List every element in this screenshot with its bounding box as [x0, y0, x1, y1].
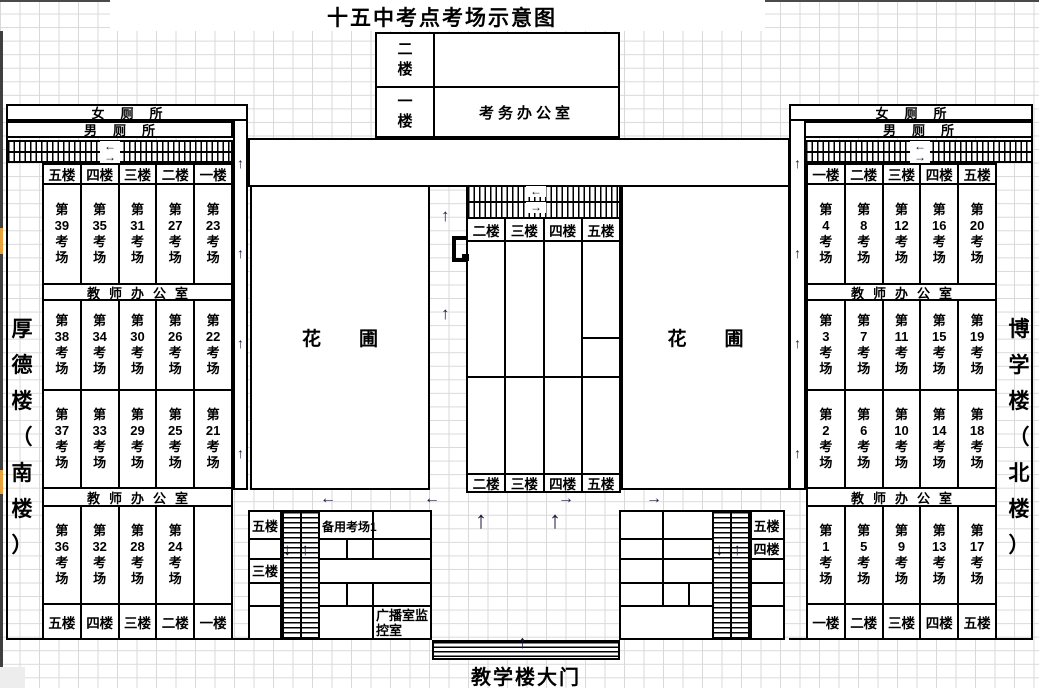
up-arrow-icon: ↑: [441, 207, 450, 224]
center-upper-cells: [468, 242, 619, 378]
exam-office-label: 考务办公室: [435, 88, 618, 136]
exam-room-label: 第 21 考 场: [206, 407, 220, 471]
right-arrow-icon: →: [558, 491, 574, 507]
exam-room-label: 第 23 考 场: [206, 202, 220, 266]
sheet-corner-shading: [0, 667, 25, 688]
empty-room-cell: [195, 507, 231, 603]
floor-label: 三楼: [884, 605, 922, 638]
up-arrow-icon: ↑: [791, 446, 804, 460]
up-arrow-icon: ↑: [301, 541, 310, 558]
wall: [750, 558, 783, 560]
exam-room-cell: 第 3 考 场: [808, 301, 846, 389]
wall: [372, 582, 374, 605]
floor-label: 三楼: [120, 605, 158, 638]
exam-room-cell: 第 27 考 场: [157, 185, 195, 283]
left-arrow-icon: ←: [320, 491, 336, 507]
up-arrow-icon: ↑: [234, 246, 247, 260]
exam-room-cell: 第 11 考 场: [884, 301, 922, 389]
down-arrow-icon: ↓: [715, 541, 724, 558]
wall: [320, 558, 430, 560]
wall: [621, 582, 712, 584]
right-arrow-icon: →: [100, 152, 120, 163]
floor-label: 二楼: [157, 165, 195, 183]
exam-room-label: 第 27 考 场: [168, 202, 182, 266]
bottom-right-stairs: [712, 512, 750, 638]
floor-label: 四楼: [82, 605, 120, 638]
sheet-left-edge: [0, 31, 3, 688]
left-room-row-1: 第 39 考 场第 35 考 场第 31 考 场第 27 考 场第 23 考 场: [44, 185, 231, 285]
center-block-cell-divider: [582, 337, 621, 339]
left-building-corridor: [233, 121, 248, 490]
broadcast-room-label: 广播室监控室: [376, 608, 430, 638]
up-arrow-icon: ↑: [441, 305, 450, 322]
floor-2-label: 二 楼: [377, 34, 435, 86]
exam-room-label: 第 2 考 场: [819, 407, 832, 471]
exam-room-cell: 第 29 考 场: [120, 391, 158, 487]
exam-layout-sheet: 十五中考点考场示意图 二 楼 一 楼 考务办公室 女厕所 男厕所 ← → 五楼四…: [0, 0, 1039, 688]
main-gate-label: 教学楼大门: [426, 661, 626, 688]
exam-room-cell: 第 39 考 场: [44, 185, 82, 283]
floor-label: 一楼: [195, 165, 231, 183]
center-stairs: ← →: [468, 187, 619, 219]
floor-label: 五楼: [959, 605, 995, 638]
up-arrow-icon: ↑: [518, 633, 527, 651]
left-building-room-grid: 五楼四楼三楼二楼一楼 第 39 考 场第 35 考 场第 31 考 场第 27 …: [42, 163, 233, 640]
up-arrow-icon: ↑: [234, 446, 247, 460]
exam-room-cell: 第 9 考 场: [884, 507, 922, 603]
exam-room-cell: 第 32 考 场: [82, 507, 120, 603]
exam-room-cell: 第 20 考 场: [959, 185, 995, 283]
floor-label: 一楼: [808, 605, 846, 638]
teacher-office-label: 教师办公室: [808, 489, 995, 507]
floor-1-label: 一 楼: [377, 88, 435, 136]
stairs-hatch: →: [468, 203, 619, 217]
bottom-right-block: 五楼 四楼 ↓ ↑: [619, 510, 785, 640]
exam-room-label: 第 33 考 场: [92, 407, 106, 471]
wall: [250, 538, 280, 540]
right-arrow-icon: →: [910, 152, 930, 163]
spare-exam-room-label: 备用考场1: [322, 518, 377, 535]
wall: [688, 582, 690, 605]
exam-room-label: 第 3 考 场: [819, 313, 832, 377]
exam-room-cell: 第 25 考 场: [157, 391, 195, 487]
wall: [662, 512, 664, 582]
left-arrow-icon: ←: [526, 186, 546, 197]
floor-label: 二楼: [468, 219, 506, 240]
exam-room-label: 第 12 考 场: [894, 202, 908, 266]
wall: [320, 538, 430, 540]
up-arrow-icon: ↑: [733, 541, 742, 558]
exam-room-label: 第 38 考 场: [55, 313, 69, 377]
exam-room-cell: 第 33 考 场: [82, 391, 120, 487]
left-floor-footer-row: 五楼四楼三楼二楼一楼: [44, 605, 231, 638]
wall: [372, 605, 374, 638]
wall: [621, 538, 712, 540]
exam-room-cell: 第 10 考 场: [884, 391, 922, 487]
stairs-hatch: →: [8, 153, 231, 162]
exam-room-cell: 第 12 考 场: [884, 185, 922, 283]
exam-room-label: 第 14 考 场: [932, 407, 946, 471]
selection-marker: [0, 228, 3, 254]
exam-room-label: 第 32 考 场: [92, 523, 106, 587]
wall: [320, 582, 430, 584]
floor-label: 五楼: [959, 165, 995, 183]
bottom-left-block: 五楼 三楼 备用考场1 广播室监控室 ↓ ↑: [248, 510, 432, 640]
floor-label: 三楼: [250, 558, 280, 582]
right-floor-footer-row: 一楼二楼三楼四楼五楼: [808, 605, 995, 638]
floor-label: 一楼: [195, 605, 231, 638]
exam-room-cell: 第 4 考 场: [808, 185, 846, 283]
center-floor-header-row: 二楼三楼四楼五楼: [468, 219, 619, 242]
up-arrow-icon: ↑: [791, 156, 804, 170]
empty-room-cell: [506, 242, 544, 376]
right-arrow-icon: →: [526, 202, 546, 213]
right-building-name: 博 学 楼 （ 北 楼 ）: [1005, 312, 1033, 564]
floor-label: 二楼: [846, 605, 884, 638]
exam-room-cell: 第 19 考 场: [959, 301, 995, 389]
right-floor-header-row: 一楼二楼三楼四楼五楼: [808, 165, 995, 185]
exam-room-label: 第 13 考 场: [932, 523, 946, 587]
up-arrow-icon: ↑: [791, 246, 804, 260]
exam-room-label: 第 26 考 场: [168, 313, 182, 377]
exam-room-label: 第 29 考 场: [130, 407, 144, 471]
wall: [662, 582, 664, 605]
floor-label: 三楼: [120, 165, 158, 183]
exam-room-cell: 第 1 考 场: [808, 507, 846, 603]
right-room-row-3: 第 2 考 场第 6 考 场第 10 考 场第 14 考 场第 18 考 场: [808, 391, 995, 489]
wall: [621, 558, 712, 560]
exam-room-cell: 第 26 考 场: [157, 301, 195, 389]
exam-room-cell: 第 22 考 场: [195, 301, 231, 389]
wall: [621, 605, 712, 607]
teacher-office-label: 教师办公室: [44, 489, 231, 507]
right-room-row-1: 第 4 考 场第 8 考 场第 12 考 场第 16 考 场第 20 考 场: [808, 185, 995, 285]
floor-label: 四楼: [82, 165, 120, 183]
empty-room-cell: [468, 378, 506, 473]
left-room-row-2: 第 38 考 场第 34 考 场第 30 考 场第 26 考 场第 22 考 场: [44, 301, 231, 391]
stairs-hatch: ←: [468, 187, 619, 203]
center-lower-cells: [468, 378, 619, 475]
exam-room-label: 第 8 考 场: [857, 202, 870, 266]
up-arrow-icon: ↑: [475, 509, 487, 533]
exam-room-label: 第 28 考 场: [130, 523, 144, 587]
stairs-hatch: →: [806, 153, 1031, 162]
floor-label: 五楼: [750, 512, 783, 538]
wall: [372, 538, 374, 558]
exam-room-cell: 第 38 考 场: [44, 301, 82, 389]
empty-room-cell: [468, 242, 506, 376]
exam-room-label: 第 20 考 场: [970, 202, 984, 266]
exam-room-cell: 第 8 考 场: [846, 185, 884, 283]
left-women-toilet: 女厕所: [6, 104, 248, 121]
empty-room-cell: [583, 378, 619, 473]
exam-room-cell: 第 30 考 场: [120, 301, 158, 389]
exam-room-cell: 第 17 考 场: [959, 507, 995, 603]
empty-room-cell: [583, 242, 619, 376]
floor-label: 五楼: [583, 475, 619, 491]
exam-room-label: 第 34 考 场: [92, 313, 106, 377]
left-room-row-3: 第 37 考 场第 33 考 场第 29 考 场第 25 考 场第 21 考 场: [44, 391, 231, 489]
exam-room-label: 第 37 考 场: [55, 407, 69, 471]
left-building-stairs: ← →: [6, 140, 233, 163]
selection-marker: [0, 470, 3, 494]
exam-room-cell: 第 16 考 场: [921, 185, 959, 283]
exam-room-label: 第 11 考 场: [895, 313, 909, 377]
garden-left: 花 圃: [250, 185, 430, 490]
exam-room-cell: 第 37 考 场: [44, 391, 82, 487]
right-room-row-2: 第 3 考 场第 7 考 场第 11 考 场第 15 考 场第 19 考 场: [808, 301, 995, 391]
exam-room-cell: 第 13 考 场: [921, 507, 959, 603]
up-arrow-icon: ↑: [234, 156, 247, 170]
floor-label: 五楼: [44, 605, 82, 638]
right-building-stairs: ← →: [804, 140, 1033, 163]
right-building-corridor: [789, 121, 806, 490]
floor-label: 四楼: [545, 219, 583, 240]
floor-label: 二楼: [468, 475, 506, 491]
left-building-name: 厚 德 楼 （ 南 楼 ）: [8, 312, 36, 564]
up-arrow-icon: ↑: [549, 509, 561, 533]
admin-office-box: 二 楼 一 楼 考务办公室: [375, 32, 620, 138]
exam-room-cell: 第 2 考 场: [808, 391, 846, 487]
exam-room-label: 第 7 考 场: [857, 313, 870, 377]
wall: [320, 605, 430, 607]
up-arrow-icon: ↑: [234, 336, 247, 350]
right-arrow-icon: →: [646, 491, 662, 507]
exam-room-cell: 第 23 考 场: [195, 185, 231, 283]
floor-label: 四楼: [545, 475, 583, 491]
floor-label: 三楼: [506, 475, 544, 491]
exam-room-label: 第 10 考 场: [894, 407, 908, 471]
right-building-room-grid: 一楼二楼三楼四楼五楼 第 4 考 场第 8 考 场第 12 考 场第 16 考 …: [806, 163, 997, 640]
exam-room-label: 第 19 考 场: [970, 313, 984, 377]
admin-box-row-2f: 二 楼: [377, 34, 618, 88]
exam-room-label: 第 22 考 场: [206, 313, 220, 377]
wall: [346, 538, 348, 558]
exam-room-label: 第 36 考 场: [55, 523, 69, 587]
empty-room-2f: [435, 34, 618, 86]
left-floor-header-row: 五楼四楼三楼二楼一楼: [44, 165, 231, 185]
floor-label: 一楼: [808, 165, 846, 183]
exam-room-cell: 第 31 考 场: [120, 185, 158, 283]
entrance-door-icon: [462, 254, 469, 261]
exam-room-cell: 第 36 考 场: [44, 507, 82, 603]
exam-room-label: 第 5 考 场: [857, 523, 870, 587]
exam-room-cell: 第 24 考 场: [157, 507, 195, 603]
wall: [346, 582, 348, 605]
admin-box-row-1f: 一 楼 考务办公室: [377, 88, 618, 136]
exam-room-label: 第 24 考 场: [168, 523, 182, 587]
wall: [750, 582, 783, 584]
floor-label: 四楼: [921, 605, 959, 638]
left-arrow-icon: ←: [424, 491, 440, 507]
floor-label: 二楼: [846, 165, 884, 183]
exam-room-label: 第 1 考 场: [819, 523, 832, 587]
exam-room-label: 第 9 考 场: [895, 523, 908, 587]
exam-room-label: 第 18 考 场: [970, 407, 984, 471]
exam-room-label: 第 25 考 场: [168, 407, 182, 471]
exam-room-cell: 第 5 考 场: [846, 507, 884, 603]
right-men-toilet: 男厕所: [804, 121, 1033, 138]
exam-room-cell: 第 15 考 场: [921, 301, 959, 389]
exam-room-cell: 第 21 考 场: [195, 391, 231, 487]
exam-room-label: 第 39 考 场: [55, 202, 69, 266]
exam-room-label: 第 31 考 场: [130, 202, 144, 266]
wall: [250, 582, 280, 584]
exam-room-label: 第 15 考 场: [932, 313, 946, 377]
exam-room-cell: 第 35 考 场: [82, 185, 120, 283]
teacher-office-label: 教师办公室: [808, 285, 995, 301]
empty-room-cell: [506, 378, 544, 473]
floor-label: 四楼: [750, 538, 783, 558]
exam-room-cell: 第 7 考 场: [846, 301, 884, 389]
top-corridor: [248, 138, 790, 187]
floor-label: 三楼: [506, 219, 544, 240]
exam-room-cell: 第 18 考 场: [959, 391, 995, 487]
wall: [750, 605, 783, 607]
left-men-toilet: 男厕所: [6, 121, 233, 138]
exam-room-cell: 第 14 考 场: [921, 391, 959, 487]
teacher-office-label: 教师办公室: [44, 285, 231, 301]
floor-label: 二楼: [157, 605, 195, 638]
exam-room-label: 第 16 考 场: [932, 202, 946, 266]
bottom-left-stairs: [282, 512, 320, 638]
left-room-row-4: 第 36 考 场第 32 考 场第 28 考 场第 24 考 场: [44, 507, 231, 605]
exam-room-cell: 第 28 考 场: [120, 507, 158, 603]
floor-label: 四楼: [921, 165, 959, 183]
floor-label: 五楼: [250, 512, 280, 538]
floor-label: 三楼: [884, 165, 922, 183]
up-arrow-icon: ↑: [791, 336, 804, 350]
exam-room-label: 第 4 考 场: [819, 202, 832, 266]
exam-room-cell: 第 34 考 场: [82, 301, 120, 389]
right-room-row-4: 第 1 考 场第 5 考 场第 9 考 场第 13 考 场第 17 考 场: [808, 507, 995, 605]
right-women-toilet: 女厕所: [789, 104, 1033, 121]
page-title: 十五中考点考场示意图: [277, 2, 607, 32]
exam-room-label: 第 35 考 场: [92, 202, 106, 266]
exam-room-label: 第 30 考 场: [130, 313, 144, 377]
empty-room-cell: [545, 242, 583, 376]
exam-room-label: 第 6 考 场: [857, 407, 870, 471]
empty-room-cell: [545, 378, 583, 473]
wall: [250, 605, 280, 607]
garden-right: 花 圃: [621, 185, 790, 490]
down-arrow-icon: ↓: [283, 541, 292, 558]
exam-room-cell: 第 6 考 场: [846, 391, 884, 487]
floor-label: 五楼: [583, 219, 619, 240]
center-block: ← → 二楼三楼四楼五楼 二楼三楼四楼五楼: [466, 185, 621, 493]
floor-label: 五楼: [44, 165, 82, 183]
exam-room-label: 第 17 考 场: [970, 523, 984, 587]
center-floor-footer-row: 二楼三楼四楼五楼: [468, 475, 619, 491]
